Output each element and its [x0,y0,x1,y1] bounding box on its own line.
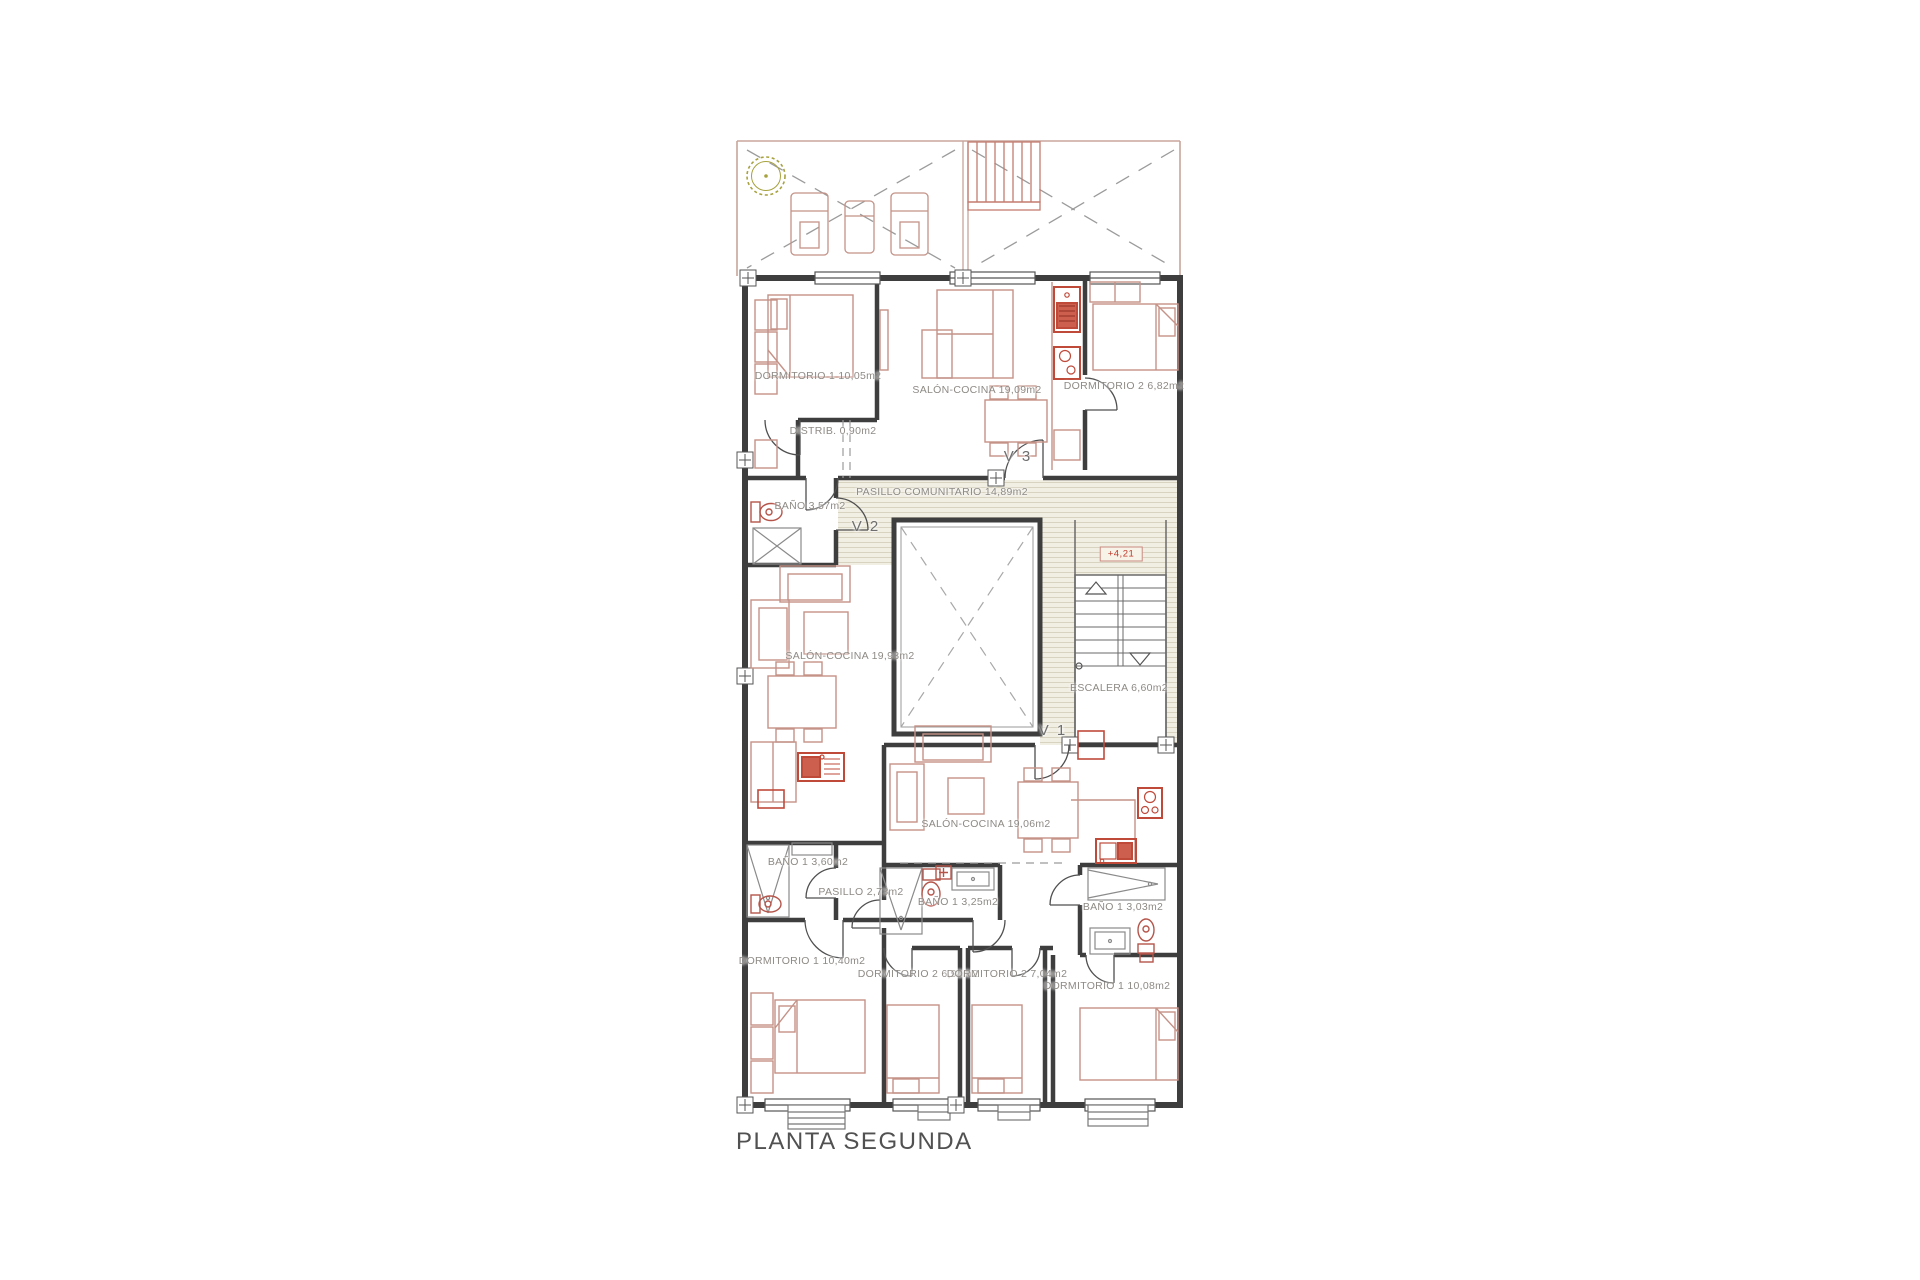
room-label-bano-top: BAÑO 3,57m2 [774,498,845,514]
bed-dormitorio2-694 [887,1005,939,1093]
balconies [788,1105,1148,1129]
room-label-dormitorio1-top: DORMITORIO 1 10,05m2 [755,368,882,384]
sun-loungers [791,193,928,255]
door-label-v3: V 3 [1004,448,1033,465]
bed-dormitorio1-bottomright [1080,1008,1178,1080]
room-label-salon-midleft: SALÓN-COCINA 19,93m2 [785,648,914,664]
floorplan-canvas: DORMITORIO 1 10,05m2 SALÓN-COCINA 19,09m… [0,0,1920,1280]
room-label-distrib: DISTRIB. 0,90m2 [790,423,877,439]
dining-set-midleft [768,662,836,742]
stove-top [1054,347,1080,379]
door-label-v1: V 1 [1039,722,1068,739]
sofa-salon-top [880,290,1013,378]
appliance-midleft [758,790,784,808]
room-label-salon-bottom: SALÓN-COCINA 19,06m2 [921,816,1050,832]
room-label-escalera: ESCALERA 6,60m2 [1070,680,1168,696]
terrace [737,141,1180,276]
dining-set-bottom [1018,768,1078,852]
stove-bottom [1138,788,1162,818]
room-label-pasillo: PASILLO 2,73m2 [818,884,903,900]
sofa-salon-bottom [890,726,991,830]
bed-dormitorio2-top [1090,282,1178,370]
plan-title: PLANTA SEGUNDA [736,1128,973,1156]
floor-plan-drawing [0,0,1920,1280]
elevator-shaft [894,520,1040,734]
room-label-dormitorio1-bottomright: DORMITORIO 1 10,08m2 [1044,978,1171,994]
tree-icon [747,157,785,195]
terrace-stair [968,142,1040,210]
bed-dormitorio1-bottomleft [751,993,865,1093]
bed-dormitorio2-704 [972,1005,1022,1093]
room-label-salon-top: SALÓN-COCINA 19,09m2 [912,382,1041,398]
door-label-v2: V 2 [852,518,881,535]
room-label-bano1-right: BAÑO 1 3,03m2 [1083,899,1163,915]
room-label-dormitorio2-top: DORMITORIO 2 6,82m2 [1064,378,1184,394]
level-mark-badge: +4,21 [1100,547,1143,562]
room-label-bano1-left: BAÑO 1 3,60m2 [768,854,848,870]
room-label-dormitorio1-bottomleft: DORMITORIO 1 10,40m2 [739,953,866,969]
room-label-bano1-center: BAÑO 1 3,25m2 [918,894,998,910]
kitchen-sink-midleft [798,753,844,781]
kitchen-sink-bottom [1096,839,1136,863]
kitchen-sink-top [1054,287,1080,332]
room-label-pasillo-comunitario: PASILLO COMUNITARIO 14,89m2 [856,484,1028,500]
